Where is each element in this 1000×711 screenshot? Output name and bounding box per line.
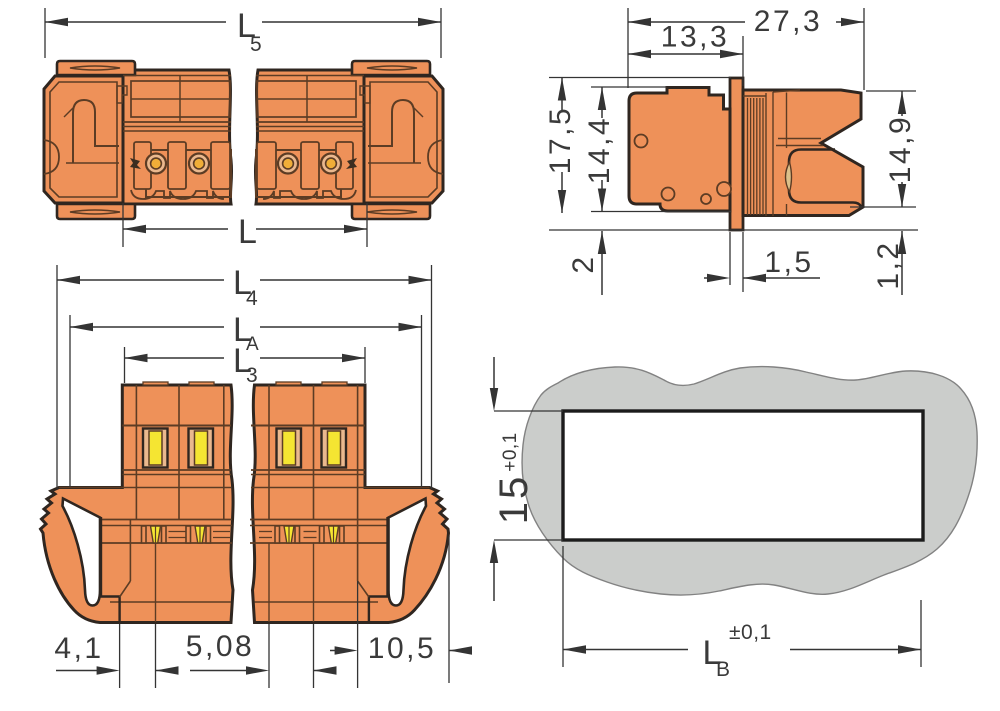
svg-text:14,9: 14,9 bbox=[884, 115, 917, 183]
svg-text:±0,1: ±0,1 bbox=[729, 621, 772, 644]
svg-text:14,4: 14,4 bbox=[583, 116, 616, 184]
svg-text:10,5: 10,5 bbox=[368, 632, 436, 665]
svg-text:15: 15 bbox=[492, 474, 536, 525]
svg-text:+0,1: +0,1 bbox=[500, 432, 521, 472]
svg-text:1,5: 1,5 bbox=[764, 246, 813, 279]
svg-text:2: 2 bbox=[567, 254, 600, 273]
svg-text:13,3: 13,3 bbox=[661, 21, 729, 54]
svg-text:5,08: 5,08 bbox=[186, 630, 254, 663]
svg-text:L: L bbox=[238, 213, 257, 251]
svg-text:3: 3 bbox=[246, 364, 258, 387]
svg-text:B: B bbox=[716, 658, 730, 681]
svg-text:4,1: 4,1 bbox=[54, 632, 103, 665]
svg-text:5: 5 bbox=[250, 33, 262, 56]
svg-text:17,5: 17,5 bbox=[544, 106, 577, 174]
svg-text:1,2: 1,2 bbox=[872, 240, 905, 289]
svg-text:4: 4 bbox=[246, 287, 258, 310]
svg-text:27,3: 27,3 bbox=[754, 5, 822, 38]
